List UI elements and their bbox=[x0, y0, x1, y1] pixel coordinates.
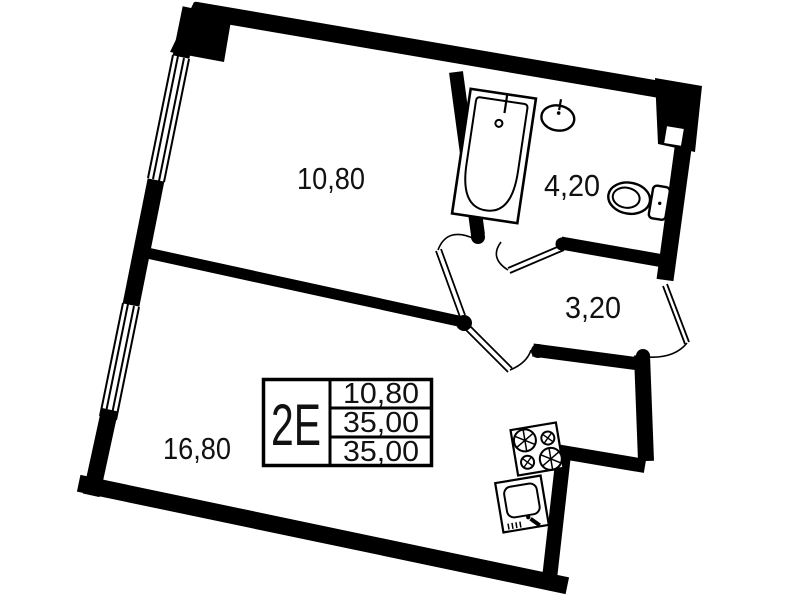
wall-bathroom-bottom bbox=[561, 243, 669, 262]
door-swing-arc bbox=[510, 350, 531, 370]
door-swing-arc bbox=[496, 242, 508, 270]
table-row-room-area: 10,80 bbox=[343, 378, 419, 410]
table-row-living-area: 35,00 bbox=[343, 407, 419, 439]
wall-hallway-bottom bbox=[533, 350, 639, 364]
table-row-total-area: 35,00 bbox=[343, 436, 419, 468]
wall-niche-right bbox=[642, 355, 646, 461]
jamb-post-kitchen bbox=[531, 344, 545, 358]
area-label-room: 10,80 bbox=[297, 161, 365, 196]
window-room bbox=[148, 55, 189, 182]
unit-info-table: 2E 10,80 35,00 35,00 bbox=[264, 378, 432, 468]
wash-basin-icon bbox=[539, 97, 577, 134]
kitchen-sink-icon bbox=[495, 476, 549, 533]
wall-bottom bbox=[87, 485, 559, 584]
jamb-post-bathwall bbox=[471, 230, 485, 244]
wall-left-2 bbox=[131, 180, 156, 305]
area-label-bathroom: 4,20 bbox=[544, 168, 600, 203]
unit-type-label: 2E bbox=[271, 393, 321, 458]
area-label-living-room: 16,80 bbox=[163, 431, 231, 466]
door-room bbox=[436, 234, 475, 317]
jamb-post-entry bbox=[636, 349, 650, 363]
wall-top bbox=[194, 10, 698, 96]
stove-icon bbox=[511, 423, 564, 476]
door-swing-arc bbox=[646, 343, 687, 357]
wall-left-3 bbox=[93, 418, 108, 487]
door-bathroom bbox=[496, 242, 564, 273]
vent-shaft bbox=[664, 126, 684, 146]
floor-plan: 10,80 4,20 3,20 16,80 2E 10,80 35,00 35,… bbox=[0, 0, 799, 600]
door-swing-arc bbox=[438, 234, 475, 250]
door-kitchen bbox=[463, 323, 531, 372]
window-living-room bbox=[100, 303, 139, 420]
toilet-icon bbox=[606, 178, 671, 220]
wall-room-divider bbox=[138, 251, 463, 322]
floor-plan-page: 10,80 4,20 3,20 16,80 2E 10,80 35,00 35,… bbox=[0, 0, 799, 600]
door-entry bbox=[646, 284, 689, 357]
jamb-post-bathdoor bbox=[556, 238, 569, 251]
area-label-hallway: 3,20 bbox=[565, 290, 621, 325]
